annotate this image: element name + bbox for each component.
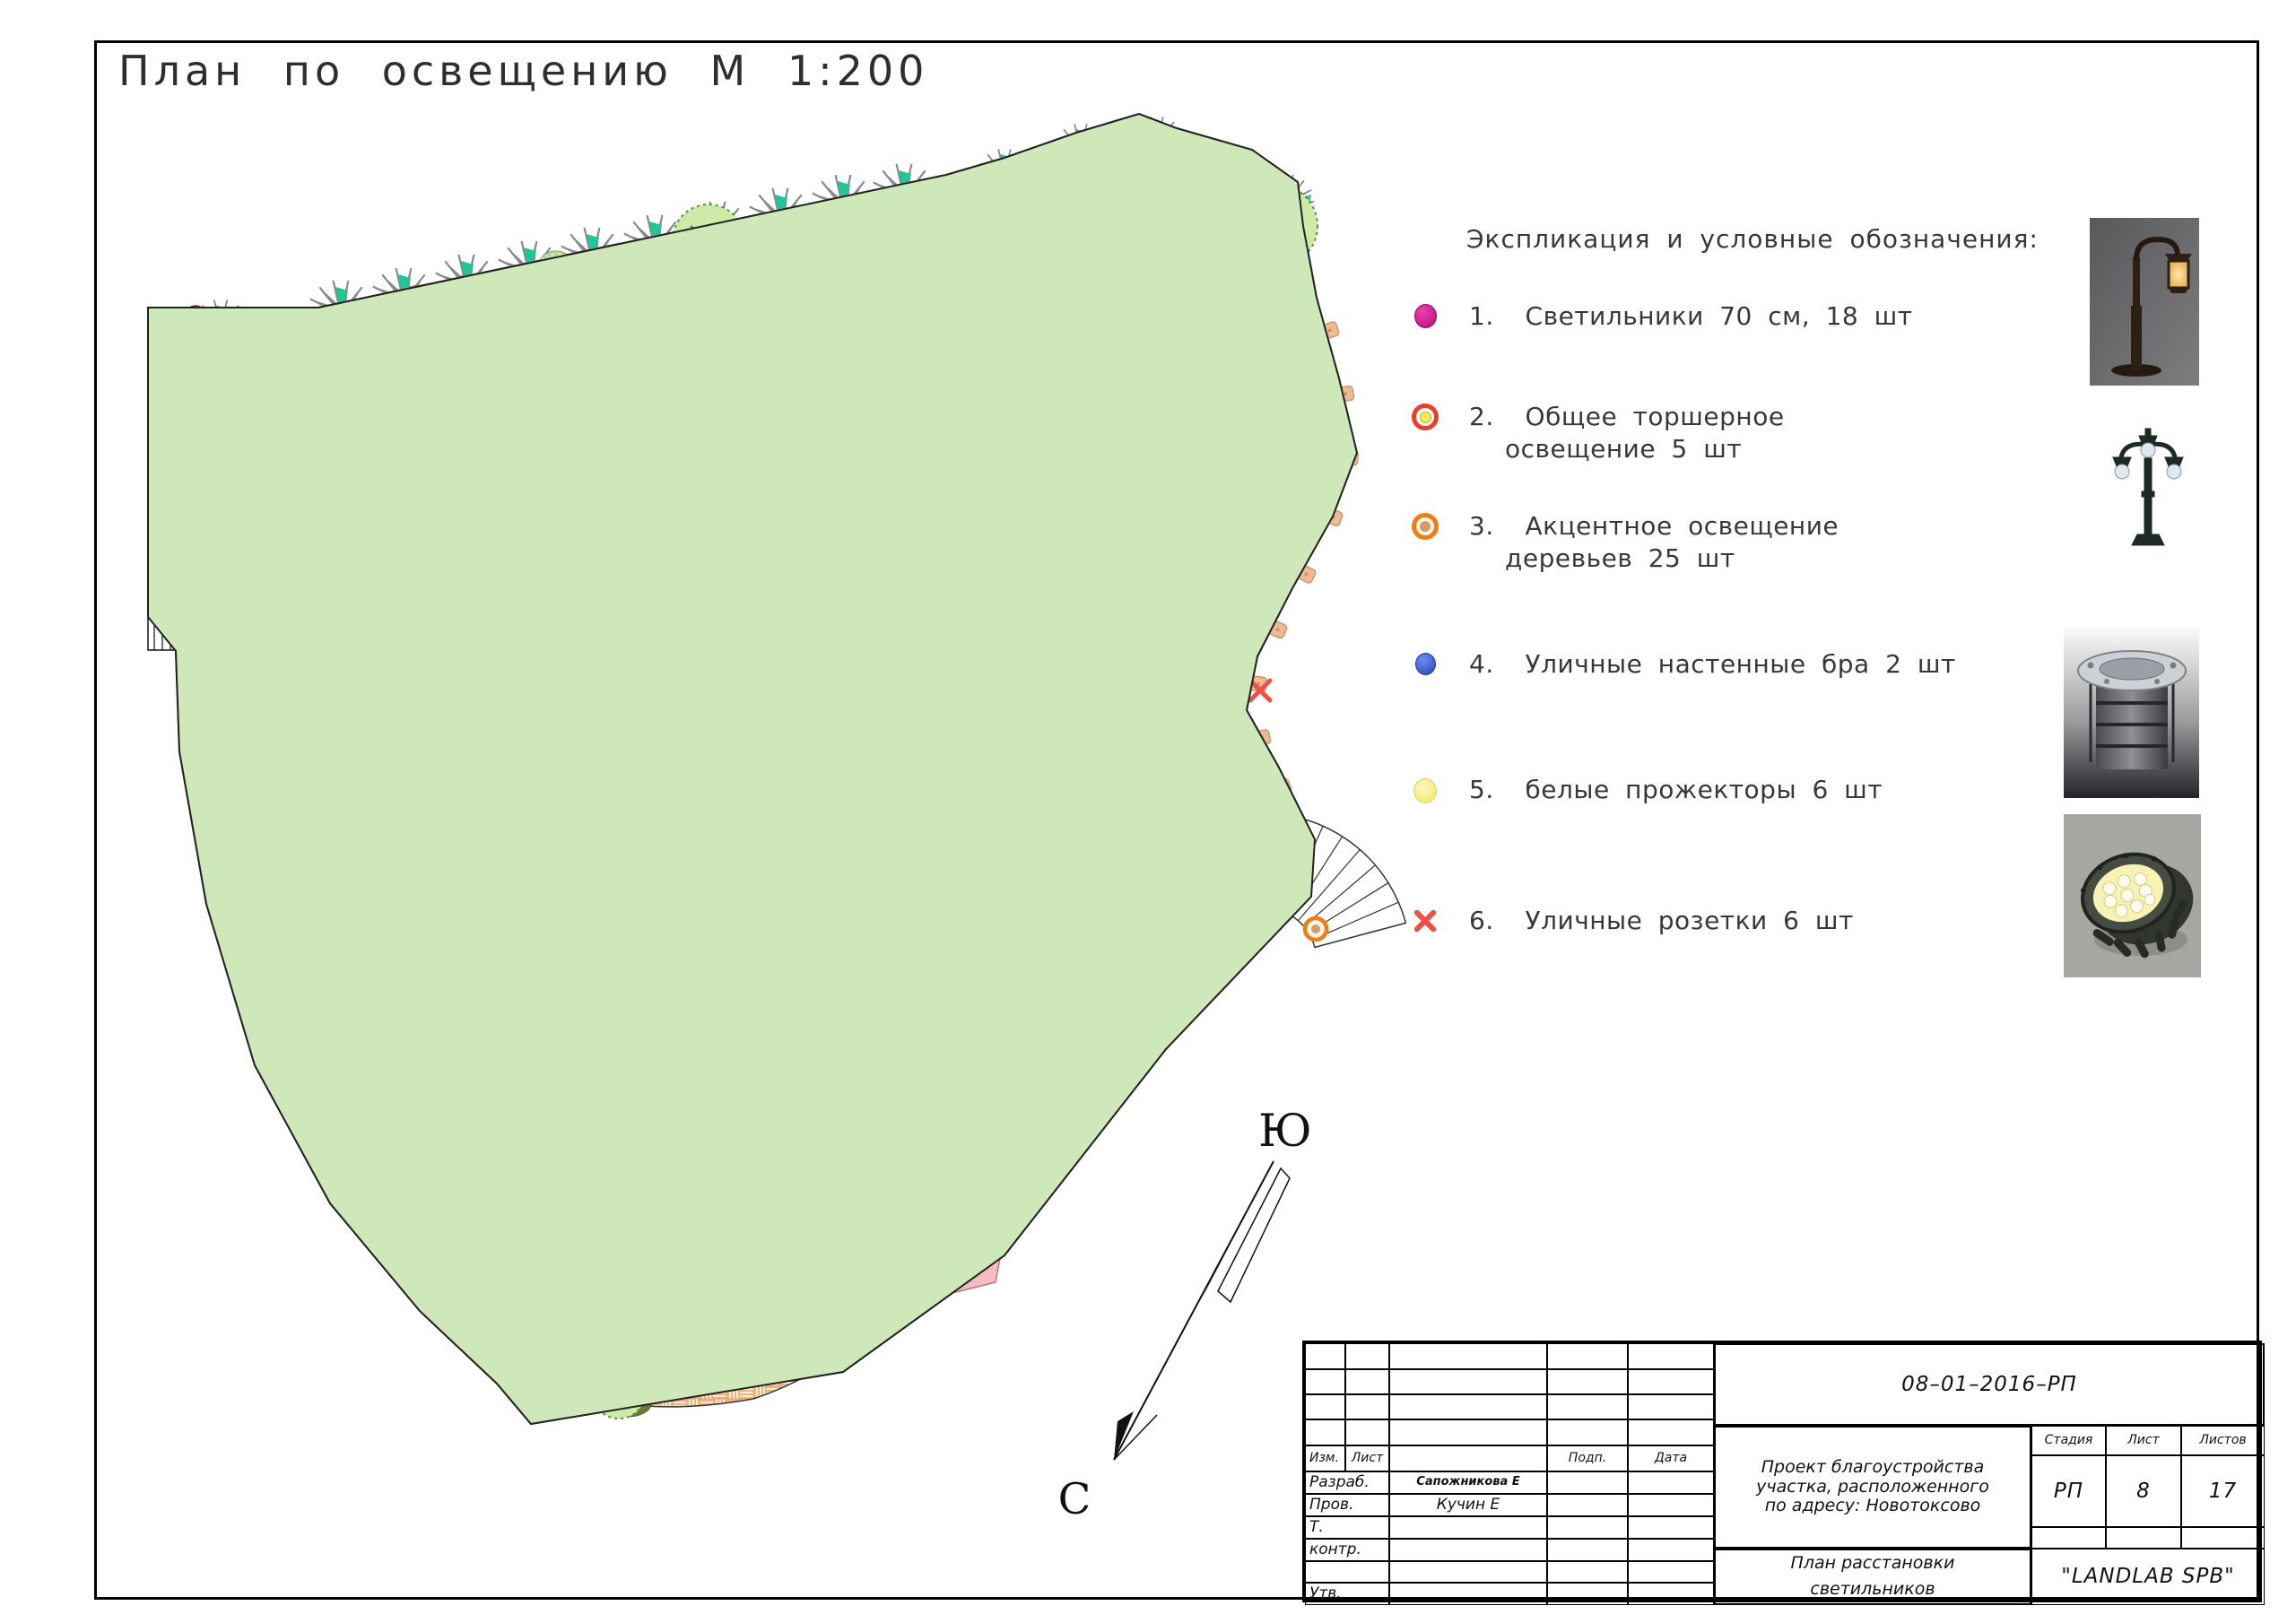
col-data: Дата [1628,1445,1714,1471]
photo-bollard-lantern [2090,218,2199,386]
yellow-dot-icon [1412,777,1437,802]
col-podp: Подп. [1547,1445,1628,1471]
photo-inground-light [2064,628,2199,798]
page-title: План по освещению М 1:200 [118,47,928,95]
stage-value: РП [2031,1455,2106,1527]
sheets-value: 17 [2181,1455,2265,1527]
razrab-name: Сапожникова Е [1389,1471,1547,1494]
prov-name: Кучин Е [1389,1494,1547,1516]
blue-dot-icon [1412,651,1437,676]
drawing-sheet: { "page": { "title": "План по освещению … [0,0,2296,1623]
photo-led-spot [2064,814,2201,977]
red-ring-yellow-icon [1412,404,1437,429]
row-utv: Утв. [1305,1583,1389,1605]
drawing-name: План расстановки светильников [1714,1549,2031,1605]
legend-header: Экспликация и условные обозначения: [1466,224,2039,254]
sheet-header: Лист [2106,1426,2181,1455]
company-name: "LANDLAB SPB" [2031,1549,2265,1605]
magenta-lamp-icon [1412,303,1437,328]
photo-lamp-post [2095,409,2201,554]
doc-number: 08–01–2016–РП [1714,1343,2265,1426]
col-list: Лист [1345,1445,1389,1471]
project-title: Проект благоустройства участка, располож… [1714,1426,2031,1549]
red-x-icon [1412,907,1437,933]
row-razrab: Разраб. [1305,1471,1389,1494]
row-prov: Пров. [1305,1494,1389,1516]
col-izm: Изм. [1305,1445,1345,1471]
orange-ring-tan-icon [1412,513,1437,538]
row-t: Т. [1305,1516,1389,1539]
title-block: Изм. Лист Подп. Дата Разраб. Сапожникова… [1302,1341,2262,1602]
sheets-header: Листов [2181,1426,2265,1455]
stage-header: Стадия [2031,1426,2106,1455]
row-kontr: контр. [1305,1539,1389,1561]
sheet-value: 8 [2106,1455,2181,1527]
